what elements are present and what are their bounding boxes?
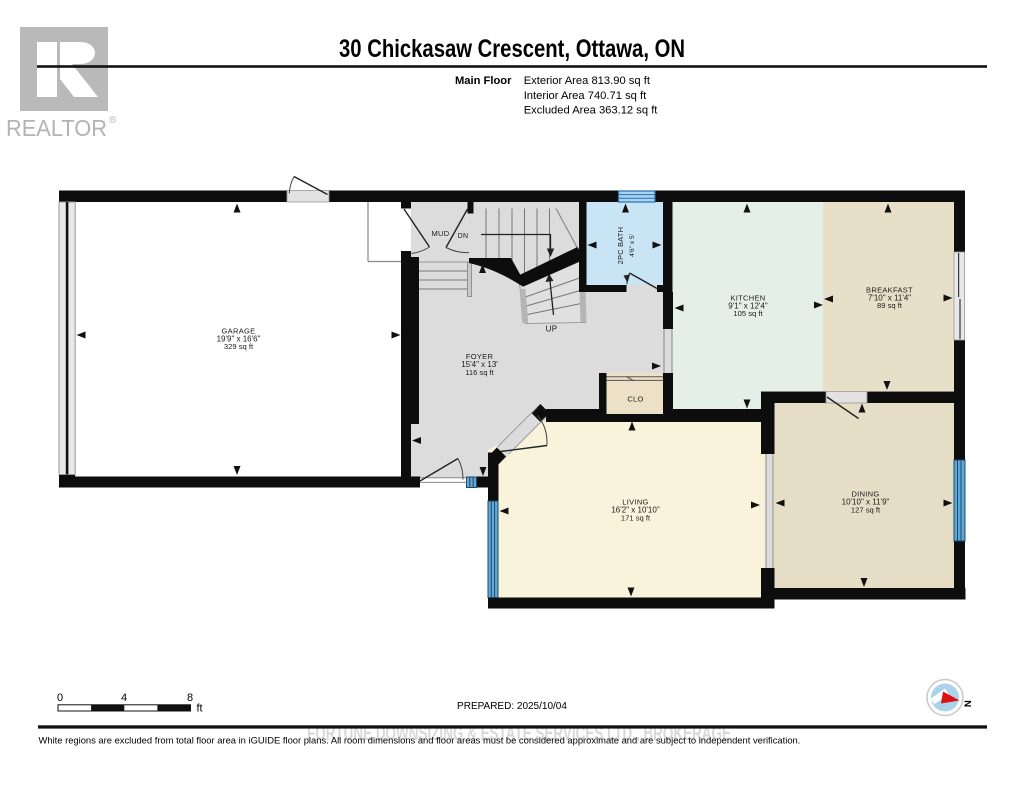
svg-text:105 sq ft: 105 sq ft (733, 309, 763, 318)
svg-text:White regions are excluded fro: White regions are excluded from total fl… (39, 735, 801, 746)
svg-text:N: N (962, 700, 973, 707)
svg-text:Main Floor: Main Floor (455, 75, 512, 87)
svg-text:2PC BATH: 2PC BATH (616, 227, 625, 265)
svg-text:171 sq ft: 171 sq ft (621, 513, 651, 522)
svg-text:4: 4 (121, 692, 127, 704)
svg-text:329 sq ft: 329 sq ft (224, 342, 254, 351)
svg-text:8: 8 (187, 692, 193, 704)
svg-text:REALTOR: REALTOR (6, 115, 107, 141)
svg-text:ft: ft (197, 703, 203, 715)
svg-text:30 Chickasaw Crescent, Ottawa,: 30 Chickasaw Crescent, Ottawa, ON (339, 35, 685, 63)
svg-text:89 sq ft: 89 sq ft (877, 301, 903, 310)
svg-text:DN: DN (458, 233, 469, 240)
svg-text:0: 0 (57, 692, 63, 704)
svg-text:CLO: CLO (627, 395, 643, 404)
svg-text:127 sq ft: 127 sq ft (851, 505, 881, 514)
svg-text:UP: UP (546, 325, 558, 334)
svg-text:MUD: MUD (432, 229, 450, 238)
svg-text:Exterior Area 813.90 sq ft: Exterior Area 813.90 sq ft (524, 75, 651, 87)
svg-text:Interior Area 740.71 sq ft: Interior Area 740.71 sq ft (524, 90, 647, 102)
svg-text:116 sq ft: 116 sq ft (465, 368, 494, 377)
svg-text:®: ® (109, 115, 117, 126)
svg-text:PREPARED: 2025/10/04: PREPARED: 2025/10/04 (457, 701, 567, 712)
svg-text:4'6" x 5': 4'6" x 5' (629, 234, 636, 257)
svg-text:Excluded Area 363.12 sq ft: Excluded Area 363.12 sq ft (524, 105, 659, 117)
